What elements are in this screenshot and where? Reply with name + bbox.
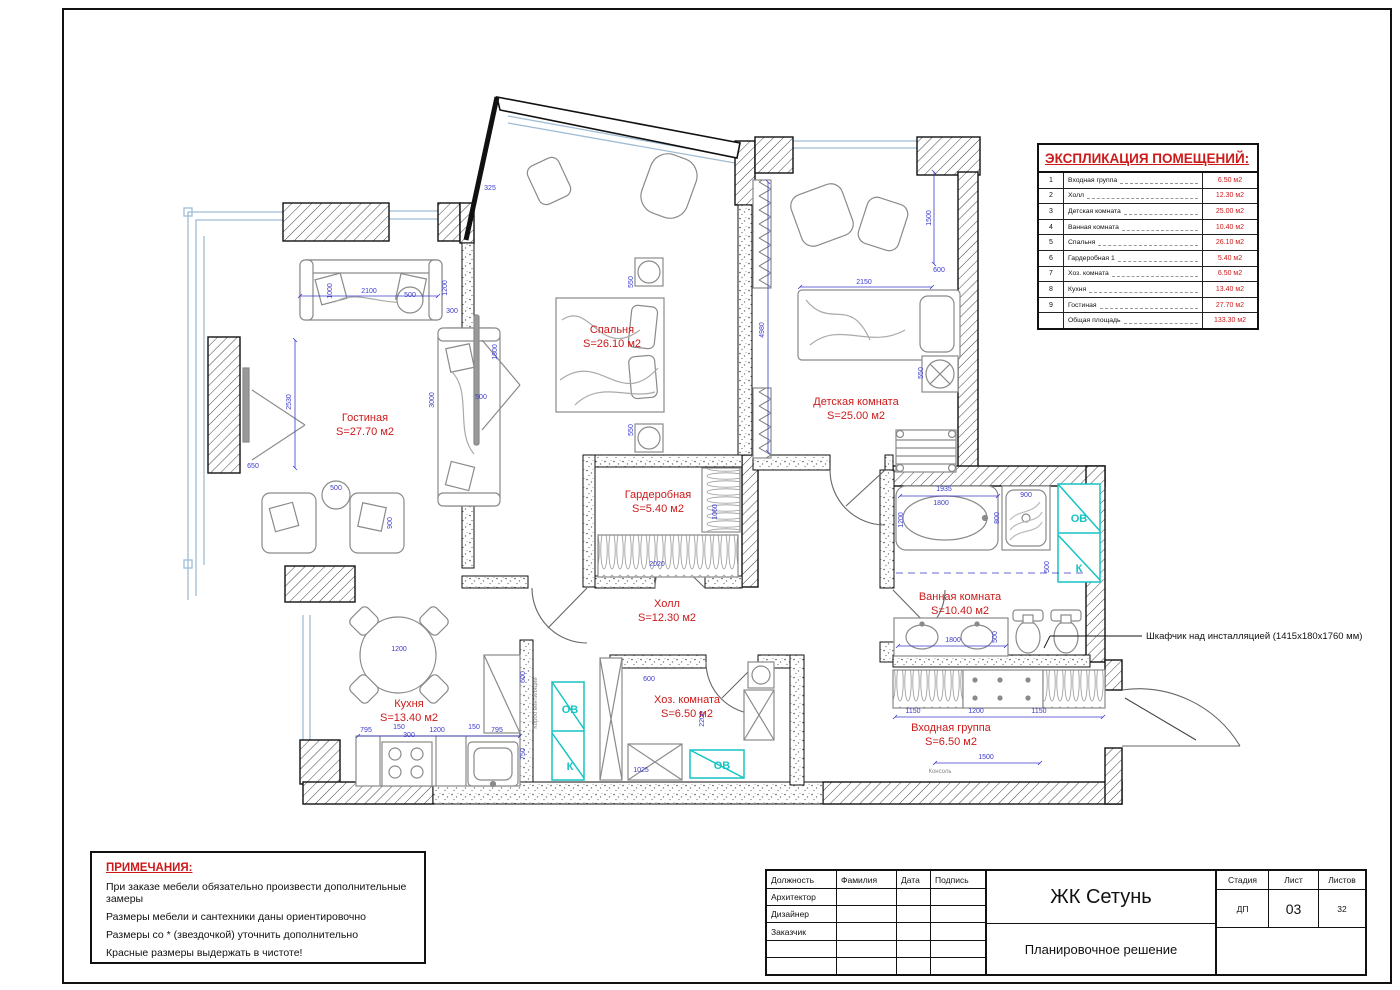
explication-table-rows: 1Входная группа6.50 м22Холл12.30 м23Детс… bbox=[1039, 173, 1257, 328]
dimension-label: 1800 bbox=[945, 637, 961, 644]
dimension-label: 500 bbox=[404, 292, 416, 299]
dimension-label: 1800 bbox=[492, 344, 499, 360]
titleblock-header-cell: Фамилия bbox=[837, 871, 897, 888]
dimension-label: 500 bbox=[992, 631, 999, 643]
room-label: Гардеробная bbox=[625, 489, 692, 501]
slanted-wall bbox=[466, 97, 740, 240]
note-line: Размеры со * (звездочкой) уточнить допол… bbox=[106, 929, 410, 941]
title-block-right: Стадия Лист Листов ДП 03 32 bbox=[1217, 871, 1365, 974]
entry-closet bbox=[893, 670, 1105, 708]
dimension-label: 1200 bbox=[898, 512, 905, 528]
titleblock-blank-cell bbox=[837, 889, 897, 905]
dimension-label: 1150 bbox=[905, 708, 920, 715]
titleblock-role-row: Заказчик bbox=[767, 923, 985, 940]
floor-fan bbox=[922, 356, 958, 392]
title-block-center: ЖК Сетунь Планировочное решение bbox=[987, 871, 1217, 974]
titleblock-role-row: Дизайнер bbox=[767, 906, 985, 923]
titleblock-blank-cell bbox=[837, 906, 897, 922]
explication-row: Общая площадь133.30 м2 bbox=[1039, 313, 1257, 328]
note-line: Красные размеры выдержать в чистоте! bbox=[106, 947, 410, 959]
dimension-label: 550 bbox=[628, 424, 635, 436]
titleblock-blank-cell bbox=[897, 958, 931, 974]
dimension-label: 1060 bbox=[712, 504, 719, 520]
dining-table bbox=[348, 605, 451, 706]
title-block-empty bbox=[1217, 928, 1365, 974]
titleblock-blank-cell bbox=[931, 889, 985, 905]
titleblock-blank-cell bbox=[837, 941, 897, 957]
vent-shaft-label: К bbox=[1076, 563, 1083, 575]
dimension-label: 600 bbox=[520, 671, 527, 683]
title-block-signatures: ДолжностьФамилияДатаПодпись АрхитекторДи… bbox=[767, 871, 987, 974]
vent-shaft-label: К bbox=[567, 761, 574, 773]
note-line: При заказе мебели обязательно произвести… bbox=[106, 881, 410, 905]
dimension-label: 795 bbox=[491, 727, 503, 734]
titleblock-roles: АрхитекторДизайнерЗаказчик bbox=[767, 889, 985, 974]
toilets bbox=[1013, 610, 1081, 653]
dimension-label: 325 bbox=[484, 185, 496, 192]
notes-title: ПРИМЕЧАНИЯ: bbox=[106, 862, 410, 874]
note-line: Размеры мебели и сантехники даны ориенти… bbox=[106, 911, 410, 923]
dimension-label: 795 bbox=[360, 727, 372, 734]
room-label: Кухня bbox=[394, 698, 423, 710]
dimension-label: 1200 bbox=[391, 646, 407, 653]
titleblock-blank-cell bbox=[897, 889, 931, 905]
dimension-label: 500 bbox=[475, 394, 487, 401]
titleblock-role-row bbox=[767, 958, 985, 974]
vent-shaft-label: ОВ bbox=[1071, 513, 1088, 525]
room-label: Хоз. комната bbox=[654, 694, 721, 706]
explication-row: 9Гостиная27.70 м2 bbox=[1039, 298, 1257, 314]
dimension-label: 1200 bbox=[442, 280, 449, 296]
stove bbox=[382, 742, 432, 786]
dimension-label: 150 bbox=[393, 724, 405, 731]
titleblock-role-cell bbox=[767, 941, 837, 957]
room-label: Ванная комната bbox=[919, 591, 1002, 603]
explication-row: 8Кухня13.40 м2 bbox=[1039, 282, 1257, 298]
dimension-label: 1500 bbox=[978, 754, 994, 761]
dimension-label: 750 bbox=[520, 748, 527, 760]
dimension-label: 650 bbox=[247, 463, 259, 470]
bedroom-chair bbox=[525, 155, 574, 207]
stage-label: Стадия bbox=[1217, 871, 1269, 889]
dimension-label: 500 bbox=[330, 485, 342, 492]
stage-value: ДП bbox=[1217, 890, 1269, 927]
bed-single bbox=[798, 290, 960, 360]
room-label: Входная группа bbox=[911, 722, 992, 734]
sheets-label: Листов bbox=[1319, 871, 1365, 889]
drawing-sheet: Шкафчик над инсталляцией (1415x180x1760 … bbox=[0, 0, 1400, 990]
desk-chair bbox=[856, 195, 911, 254]
explication-row: 7Хоз. комната6.50 м2 bbox=[1039, 267, 1257, 283]
dimension-label: 2530 bbox=[286, 394, 293, 410]
lounge-chair bbox=[636, 149, 702, 224]
vent-shaft-label: ОВ bbox=[562, 704, 579, 716]
dimension-label: 600 bbox=[933, 267, 945, 274]
room-label: Холл bbox=[654, 598, 680, 610]
notes-lines: При заказе мебели обязательно произвести… bbox=[106, 881, 410, 959]
wardrobe-rail bbox=[598, 535, 738, 577]
titleblock-blank-cell bbox=[837, 923, 897, 939]
titleblock-blank-cell bbox=[897, 941, 931, 957]
titleblock-blank-cell bbox=[897, 923, 931, 939]
titleblock-role-cell bbox=[767, 958, 837, 974]
titleblock-role-row: Архитектор bbox=[767, 889, 985, 906]
explication-row: 4Ванная комната10.40 м2 bbox=[1039, 220, 1257, 236]
titleblock-blank-cell bbox=[897, 906, 931, 922]
small-note-label: Консоль bbox=[928, 769, 951, 775]
titleblock-blank-cell bbox=[931, 958, 985, 974]
room-area-label: S=26.10 м2 bbox=[583, 338, 641, 350]
titleblock-blank-cell bbox=[837, 958, 897, 974]
room-area-label: S=25.00 м2 bbox=[827, 410, 885, 422]
dimension-label: 2150 bbox=[856, 279, 872, 286]
dimension-label: 600 bbox=[643, 676, 655, 683]
title-block: ДолжностьФамилияДатаПодпись АрхитекторДи… bbox=[765, 869, 1367, 976]
explication-table: ЭКСПЛИКАЦИЯ ПОМЕЩЕНИЙ: 1Входная группа6.… bbox=[1037, 143, 1259, 330]
titleblock-role-cell: Дизайнер bbox=[767, 906, 837, 922]
dimension-label: 550 bbox=[918, 367, 925, 379]
dimension-label: 550 bbox=[628, 276, 635, 288]
sheets-value: 32 bbox=[1319, 890, 1365, 927]
room-area-label: S=27.70 м2 bbox=[336, 426, 394, 438]
dimension-label: 4980 bbox=[759, 322, 766, 338]
dimension-label: 300 bbox=[446, 308, 458, 315]
room-area-label: S=5.40 м2 bbox=[632, 503, 684, 515]
drawing-name: Планировочное решение bbox=[987, 924, 1215, 974]
room-area-label: S=12.30 м2 bbox=[638, 612, 696, 624]
dimension-label: 900 bbox=[387, 517, 394, 529]
wardrobe-rail-side bbox=[702, 468, 740, 532]
sheet-label: Лист bbox=[1269, 871, 1319, 889]
titleblock-role-cell: Архитектор bbox=[767, 889, 837, 905]
bench-shelf bbox=[896, 430, 956, 472]
dimension-label: 1935 bbox=[936, 486, 952, 493]
titleblock-header-cell: Подпись bbox=[931, 871, 985, 888]
explication-row: 3Детская комната25.00 м2 bbox=[1039, 204, 1257, 220]
dimension-label: 3000 bbox=[429, 392, 436, 408]
children-armchair bbox=[787, 180, 856, 249]
explication-title: ЭКСПЛИКАЦИЯ ПОМЕЩЕНИЙ: bbox=[1039, 145, 1257, 173]
explication-row: 5Спальня26.10 м2 bbox=[1039, 235, 1257, 251]
titleblock-blank-cell bbox=[931, 923, 985, 939]
small-note-label: Короб вентиляции bbox=[533, 677, 539, 728]
dimension-label: 2020 bbox=[649, 561, 665, 568]
sheet-value: 03 bbox=[1269, 890, 1319, 927]
dimension-label: 1200 bbox=[429, 727, 445, 734]
titleblock-header-cell: Должность bbox=[767, 871, 837, 888]
dimension-label: 1800 bbox=[933, 500, 949, 507]
dimension-label: 1500 bbox=[926, 210, 933, 226]
project-name: ЖК Сетунь bbox=[987, 871, 1215, 924]
room-area-label: S=13.40 м2 bbox=[380, 712, 438, 724]
annotation-text: Шкафчик над инсталляцией (1415x180x1760 … bbox=[1146, 631, 1362, 642]
dimension-label: 900 bbox=[1020, 492, 1032, 499]
dimension-label: 800 bbox=[994, 512, 1001, 524]
explication-row: 6Гардеробная 15.40 м2 bbox=[1039, 251, 1257, 267]
titleblock-role-row bbox=[767, 941, 985, 958]
dimension-label: 2100 bbox=[361, 288, 377, 295]
room-area-label: S=10.40 м2 bbox=[931, 605, 989, 617]
dimension-label: 500 bbox=[1044, 561, 1051, 573]
room-area-label: S=6.50 м2 bbox=[925, 736, 977, 748]
room-label: Гостиная bbox=[342, 412, 388, 424]
dimension-label: 1200 bbox=[968, 708, 984, 715]
room-label: Детская комната bbox=[813, 396, 899, 408]
bed-double bbox=[556, 298, 664, 412]
dimension-label: 1025 bbox=[633, 767, 649, 774]
titleblock-headers: ДолжностьФамилияДатаПодпись bbox=[767, 871, 985, 889]
titleblock-blank-cell bbox=[931, 941, 985, 957]
dimension-label: 300 bbox=[403, 732, 415, 739]
explication-row: 2Холл12.30 м2 bbox=[1039, 189, 1257, 205]
tv-unit bbox=[243, 368, 305, 460]
side-table bbox=[397, 287, 423, 313]
sofa-chaise bbox=[438, 328, 500, 506]
dimension-label: 150 bbox=[468, 724, 480, 731]
vent-shaft-label: ОВ bbox=[714, 760, 731, 772]
explication-row: 1Входная группа6.50 м2 bbox=[1039, 173, 1257, 189]
dimension-label: 1000 bbox=[327, 283, 334, 299]
titleblock-header-cell: Дата bbox=[897, 871, 931, 888]
titleblock-blank-cell bbox=[931, 906, 985, 922]
dimension-label: 2200 bbox=[699, 711, 706, 727]
dimension-label: 1150 bbox=[1031, 708, 1046, 715]
room-label: Спальня bbox=[590, 324, 634, 336]
kitchen-sink bbox=[468, 742, 518, 787]
titleblock-role-cell: Заказчик bbox=[767, 923, 837, 939]
notes-box: ПРИМЕЧАНИЯ: При заказе мебели обязательн… bbox=[90, 851, 426, 964]
